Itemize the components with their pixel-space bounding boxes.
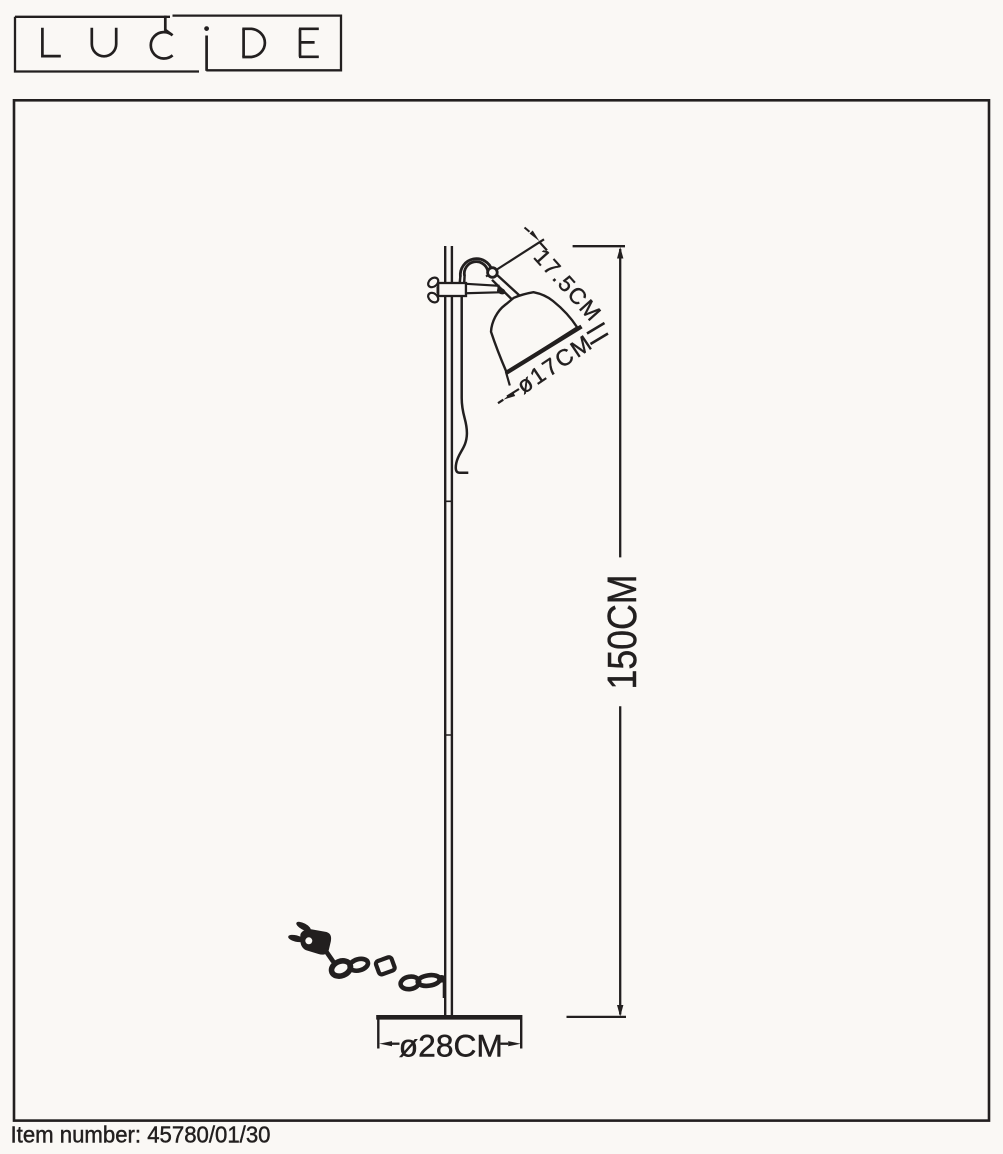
svg-text:ø28CM: ø28CM [399,1028,503,1064]
svg-text:Item number: 45780/01/30: Item number: 45780/01/30 [11,1122,271,1148]
svg-text:150CM: 150CM [599,575,645,690]
